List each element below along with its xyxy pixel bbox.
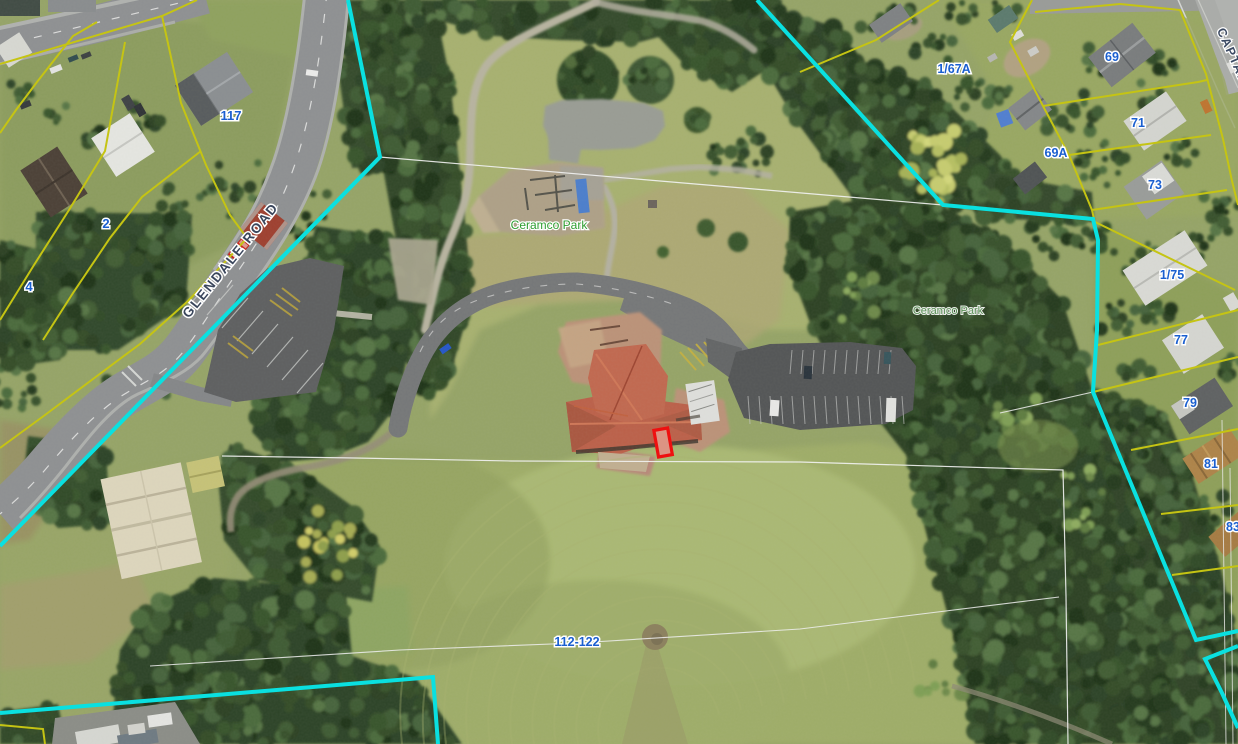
svg-text:1/75: 1/75 (1160, 268, 1184, 282)
svg-text:79: 79 (1183, 396, 1197, 410)
svg-text:4: 4 (25, 279, 33, 294)
svg-text:Ceramco Park: Ceramco Park (913, 305, 984, 317)
svg-text:83: 83 (1226, 520, 1238, 534)
svg-text:69: 69 (1105, 50, 1119, 64)
svg-text:117: 117 (221, 108, 242, 123)
svg-text:112-122: 112-122 (554, 635, 599, 649)
svg-text:71: 71 (1131, 116, 1145, 130)
svg-text:73: 73 (1148, 178, 1162, 192)
svg-text:1/67A: 1/67A (937, 62, 970, 76)
svg-text:69A: 69A (1045, 146, 1068, 160)
svg-text:81: 81 (1204, 457, 1218, 471)
svg-text:77: 77 (1174, 333, 1188, 347)
svg-text:Ceramco Park: Ceramco Park (511, 218, 589, 232)
svg-text:2: 2 (102, 216, 109, 231)
